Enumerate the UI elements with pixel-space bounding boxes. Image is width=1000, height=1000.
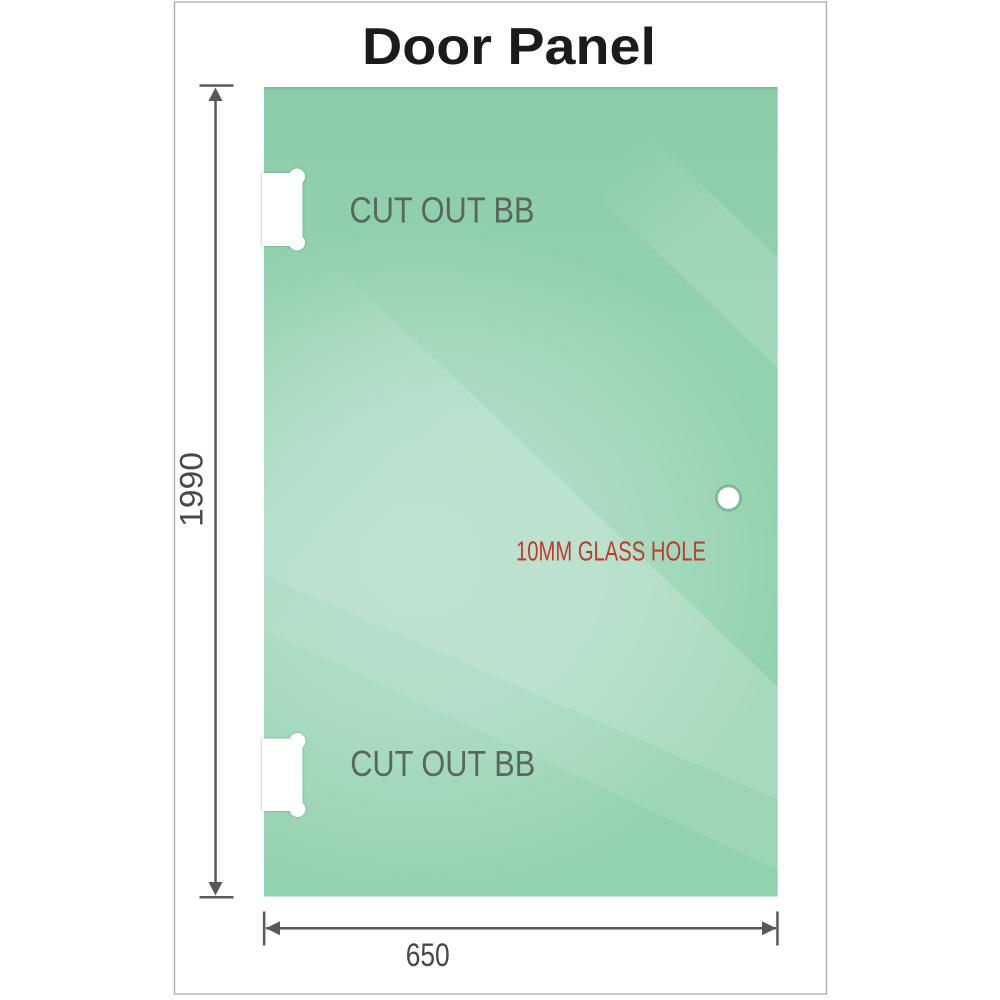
svg-text:Door Panel: Door Panel [362,18,656,76]
svg-text:1990: 1990 [174,452,210,527]
svg-text:10MM GLASS HOLE: 10MM GLASS HOLE [516,536,706,567]
svg-text:CUT OUT BB: CUT OUT BB [350,190,535,231]
svg-text:CUT OUT BB: CUT OUT BB [350,743,535,784]
svg-text:650: 650 [406,937,450,973]
